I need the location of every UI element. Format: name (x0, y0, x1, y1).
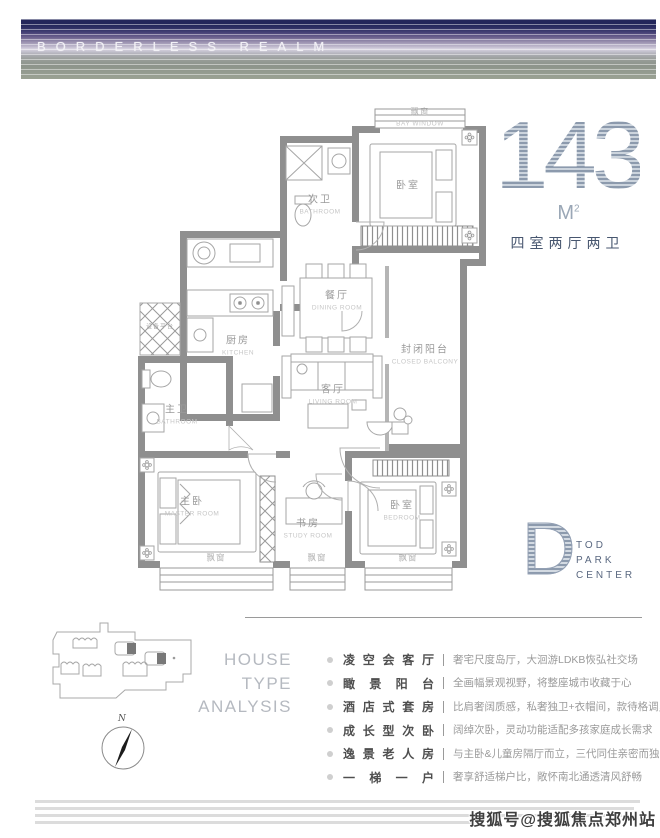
room-label-study: 书房STUDY ROOM (284, 519, 333, 542)
analysis-item: 瞰 景 阳 台 全画幅景观视野，将整座城市收藏于心 (327, 672, 647, 696)
watermark: 搜狐号@搜狐焦点郑州站 (469, 806, 656, 830)
analysis-heading: HOUSE TYPE ANALYSIS (150, 648, 292, 719)
room-label-balcony: 封闭阳台CLOSED BALCONY (392, 345, 459, 368)
top-banner: BORDERLESS REALM (21, 19, 656, 79)
analysis-item: 逸景老人房 与主卧&儿童房隔厅而立，三代同住亲密而独立 (327, 742, 647, 766)
room-label-bedroom-bottom: 卧室BEDROOM (383, 501, 420, 524)
compass-north-label: N (118, 714, 126, 724)
room-label-bedroom-top: 卧室 (396, 181, 420, 192)
d-logo-text: TOD PARK CENTER (576, 538, 635, 583)
bullet-icon (327, 657, 333, 663)
analysis-item: 一 梯 一 户 奢享舒适梯户比，敞怀南北通透清风舒畅 (327, 766, 647, 790)
d-logo: D TOD PARK CENTER (522, 512, 652, 602)
compass: N (96, 714, 156, 778)
layout-text: 四室两厅两卫 (495, 233, 640, 253)
room-label-master-bath: 主卫BATHROOM (156, 405, 197, 428)
room-label-bay3: 飘窗 (398, 553, 417, 564)
banner-title: BORDERLESS REALM (37, 39, 334, 54)
bullet-icon (327, 774, 333, 780)
area-unit: M2 (557, 202, 579, 225)
area-headline: 143M2 四室两厅两卫 (495, 110, 640, 253)
room-label-living: 客厅LIVING ROOM (309, 385, 358, 408)
bullet-icon (327, 727, 333, 733)
section-divider (245, 617, 642, 618)
floorplan: 飘窗BAY WINDOW 次卫BATHROOM 卧室 厨房KITCHEN 餐厅D… (130, 106, 515, 621)
area-number: 143 (495, 110, 640, 202)
room-label-bath2: 次卫BATHROOM (299, 195, 340, 218)
bullet-icon (327, 704, 333, 710)
room-label-dining: 餐厅DINING ROOM (312, 291, 362, 314)
analysis-item: 凌空会客厅 奢宅尺度岛厅，大洄游LDKB恢弘社交场 (327, 648, 647, 672)
analysis-list: 凌空会客厅 奢宅尺度岛厅，大洄游LDKB恢弘社交场 瞰 景 阳 台 全画幅景观视… (327, 648, 647, 789)
room-label-master: 主卧MASTER ROOM (165, 497, 220, 520)
room-label-equipment: 设备平台 (146, 323, 174, 334)
analysis-item: 酒店式套房 比肩奢阔质感，私奢独卫+衣帽间，款待格调灵魂 (327, 695, 647, 719)
room-label-bay-top: 飘窗BAY WINDOW (396, 107, 444, 130)
room-label-bay1: 飘窗 (206, 553, 225, 564)
bullet-icon (327, 680, 333, 686)
room-label-kitchen: 厨房KITCHEN (222, 336, 254, 359)
analysis-item: 成长型次卧 阔绰次卧，灵动功能适配多孩家庭成长需求 (327, 719, 647, 743)
bullet-icon (327, 751, 333, 757)
room-label-bay2: 飘窗 (307, 553, 326, 564)
